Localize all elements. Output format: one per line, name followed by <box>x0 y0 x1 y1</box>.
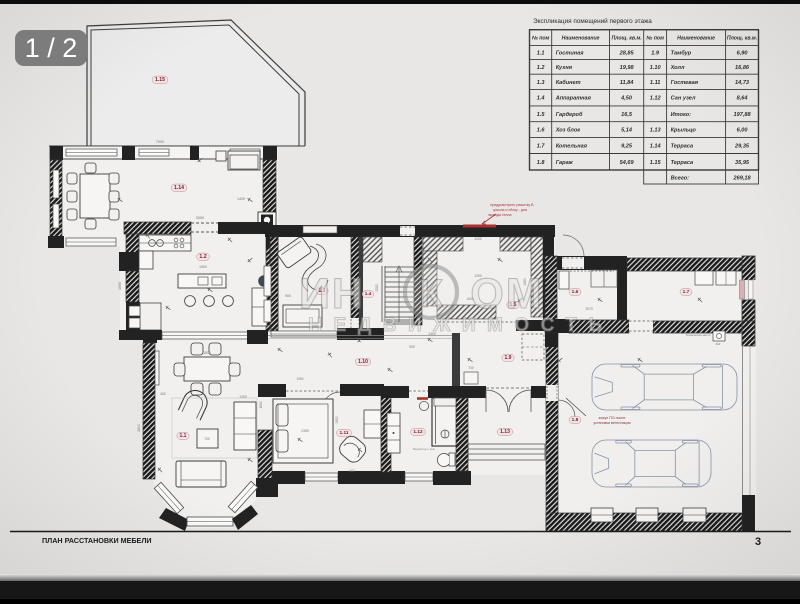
svg-text:1 / 2: 1 / 2 <box>25 33 78 63</box>
